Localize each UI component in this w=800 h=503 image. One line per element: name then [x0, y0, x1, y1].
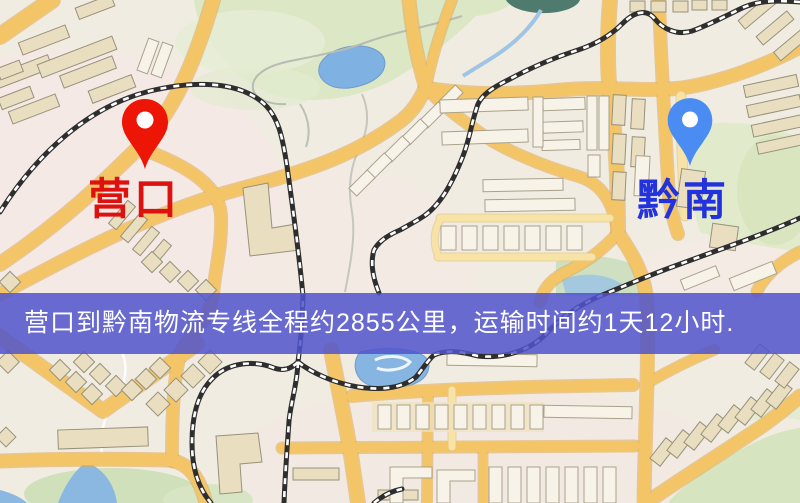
logistics-route-map: 营口 黔南 营口到黔南物流专线全程约2855公里，运输时间约1天12小时.	[0, 0, 800, 503]
route-info-banner: 营口到黔南物流专线全程约2855公里，运输时间约1天12小时.	[0, 293, 800, 354]
origin-city-label: 营口	[88, 179, 180, 222]
destination-city-label: 黔南	[637, 180, 729, 223]
route-info-text: 营口到黔南物流专线全程约2855公里，运输时间约1天12小时.	[0, 293, 800, 354]
map-image	[0, 0, 800, 503]
